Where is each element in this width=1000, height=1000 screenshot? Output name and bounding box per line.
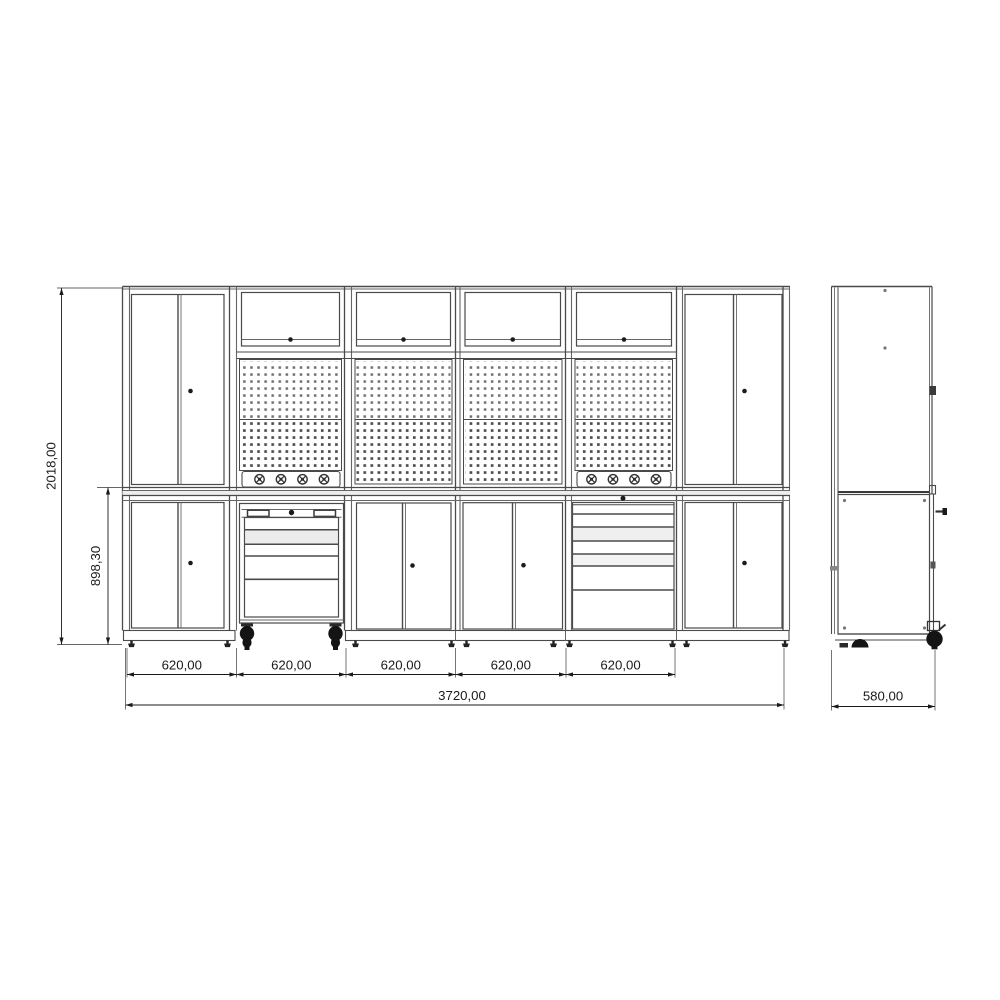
svg-text:898,30: 898,30 [88,546,103,586]
svg-text:620,00: 620,00 [381,657,421,672]
svg-text:620,00: 620,00 [162,657,202,672]
svg-text:620,00: 620,00 [600,657,640,672]
svg-text:3720,00: 3720,00 [438,688,486,703]
svg-text:2018,00: 2018,00 [44,442,59,490]
svg-text:580,00: 580,00 [863,689,903,704]
svg-text:620,00: 620,00 [271,657,311,672]
svg-text:620,00: 620,00 [491,657,531,672]
